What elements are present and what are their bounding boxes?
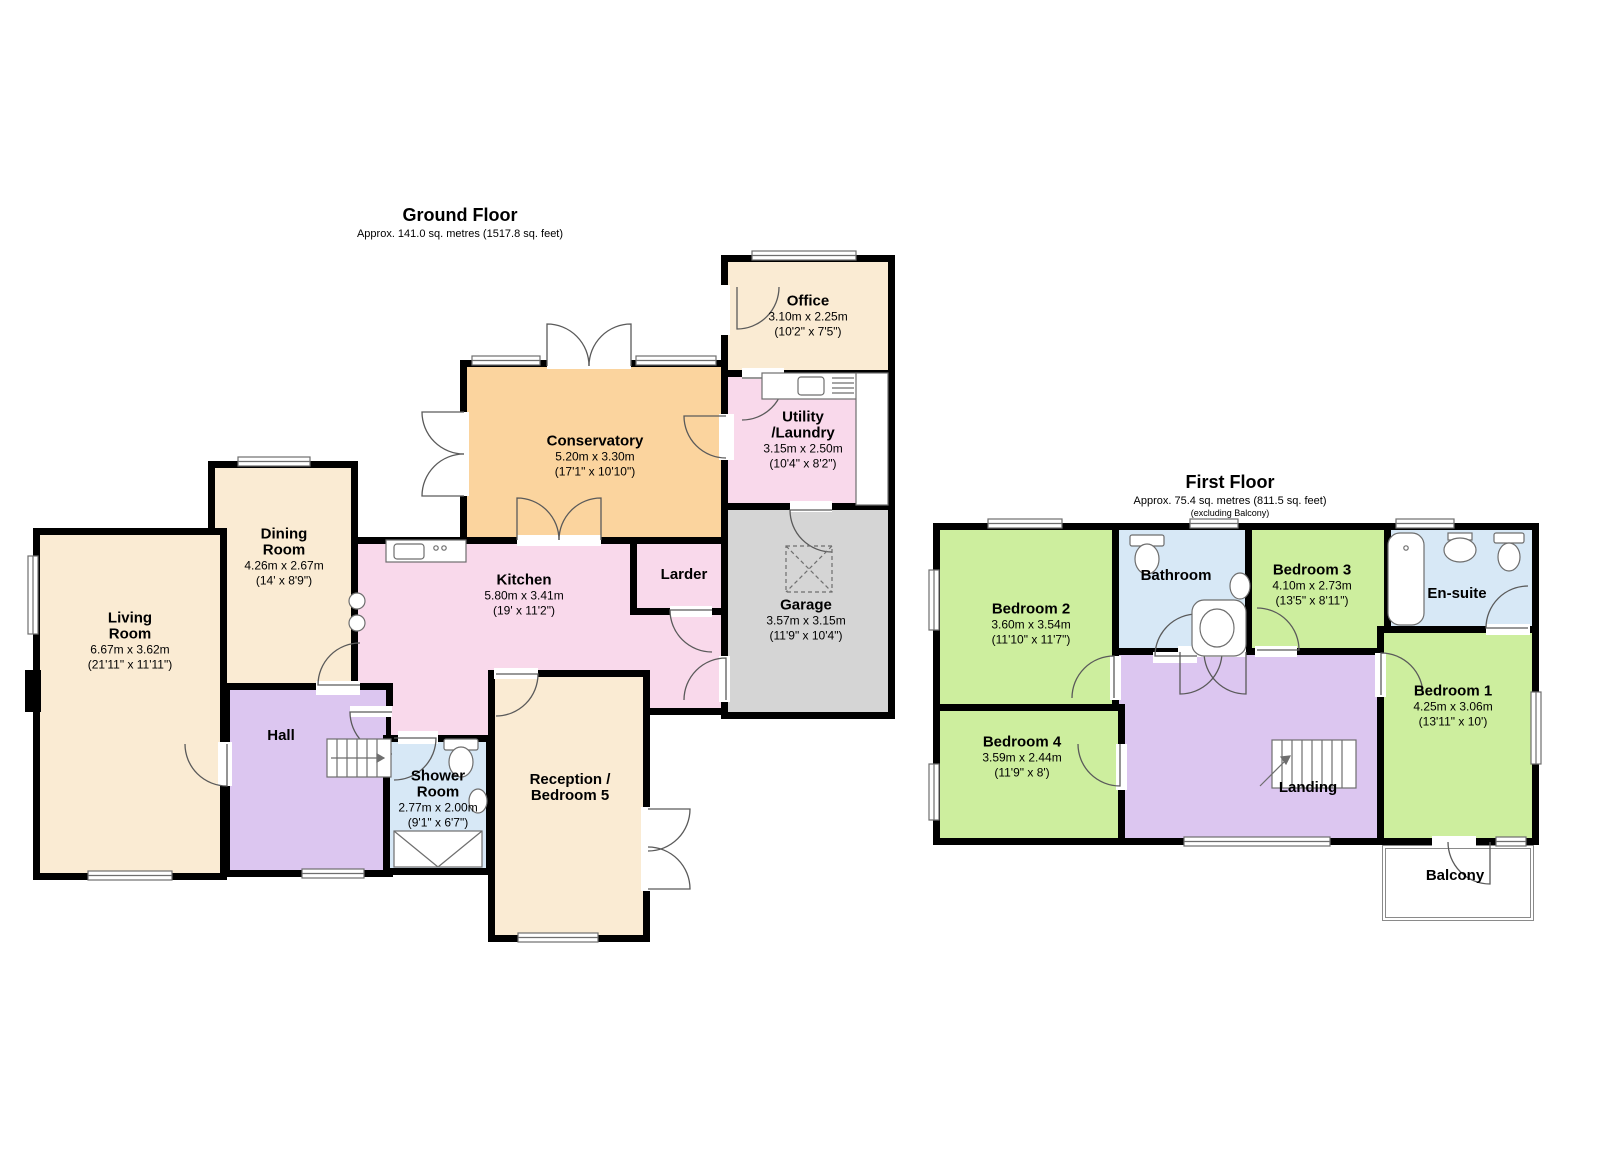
chimney-block [25,670,41,712]
doors-windows-fixtures-overlay [0,0,1600,1164]
floorplan-canvas: Ground Floor Approx. 141.0 sq. metres (1… [0,0,1600,1164]
fixtures [327,373,1524,867]
windows [28,251,1541,942]
